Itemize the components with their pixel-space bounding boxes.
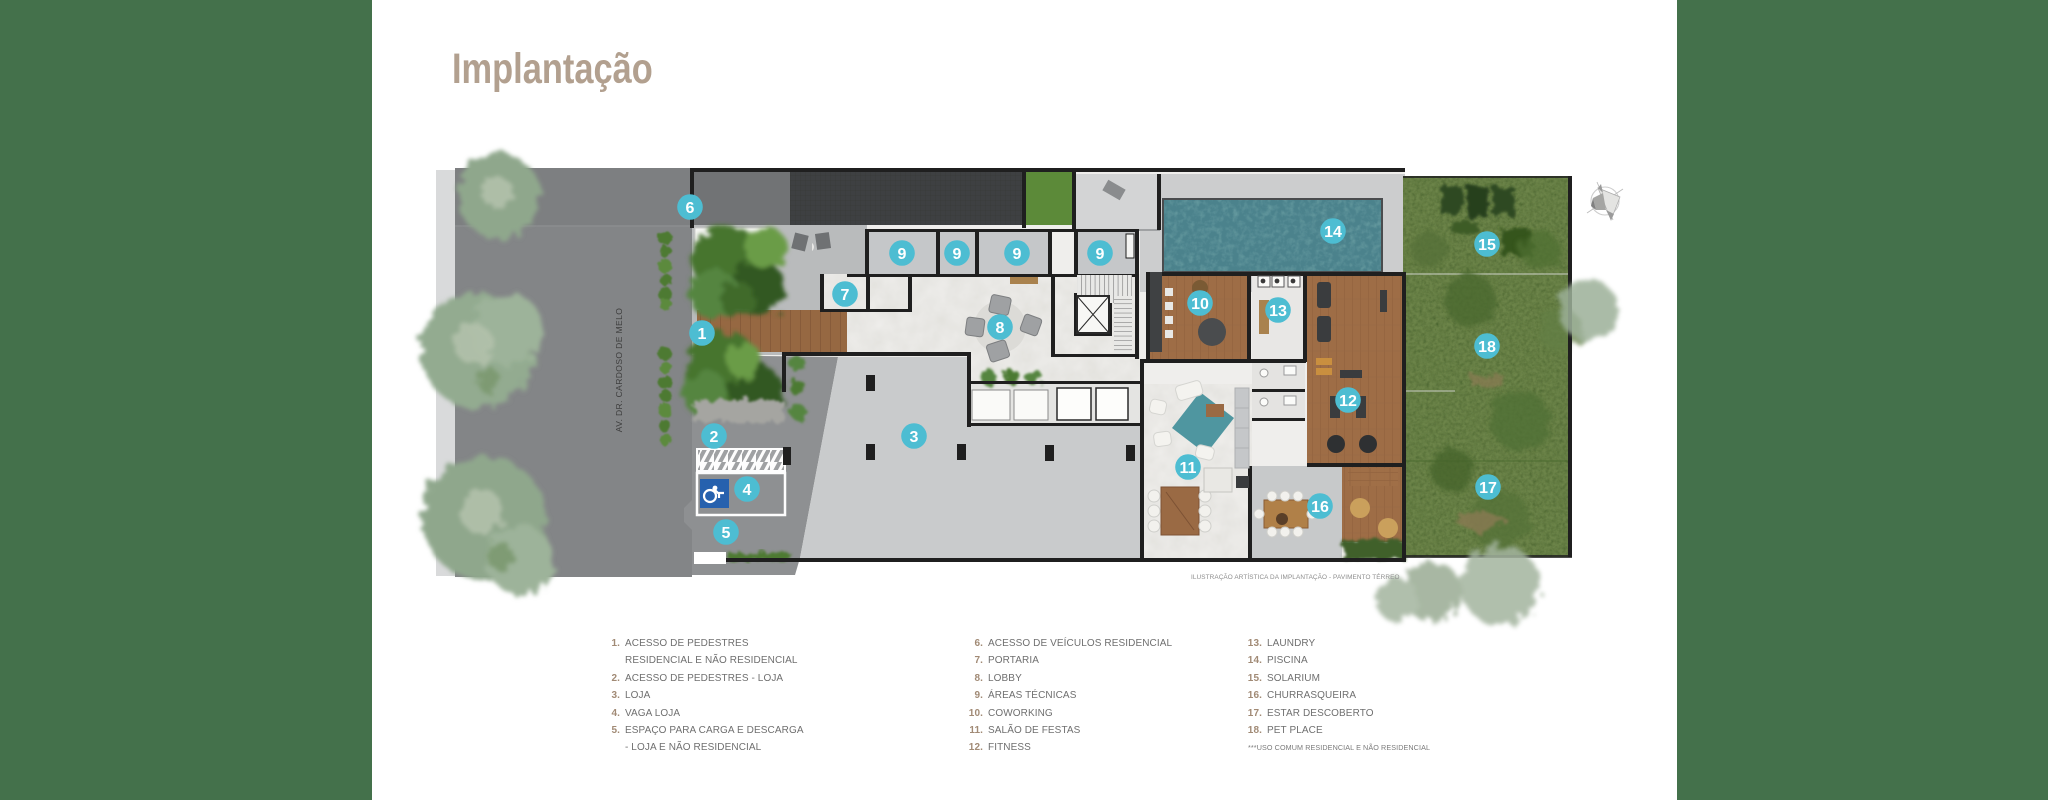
svg-text:3: 3 [910, 429, 919, 446]
svg-text:AV. DR. CARDOSO DE MELO: AV. DR. CARDOSO DE MELO [614, 308, 624, 432]
svg-text:1: 1 [698, 326, 707, 343]
svg-text:11: 11 [1180, 460, 1197, 477]
svg-text:9: 9 [898, 246, 907, 263]
svg-text:7: 7 [841, 287, 850, 304]
svg-text:2: 2 [710, 429, 719, 446]
svg-text:12: 12 [1339, 393, 1357, 410]
svg-text:16: 16 [1311, 499, 1329, 516]
svg-text:17: 17 [1479, 480, 1497, 497]
svg-text:14: 14 [1324, 224, 1342, 241]
svg-text:15: 15 [1478, 237, 1496, 254]
svg-text:13: 13 [1269, 303, 1287, 320]
svg-text:9: 9 [1096, 246, 1105, 263]
svg-text:4: 4 [743, 482, 752, 499]
svg-text:6: 6 [686, 200, 695, 217]
svg-text:9: 9 [1013, 246, 1022, 263]
svg-text:10: 10 [1191, 296, 1209, 313]
svg-text:5: 5 [722, 525, 731, 542]
svg-text:8: 8 [996, 320, 1005, 337]
svg-text:18: 18 [1478, 339, 1496, 356]
svg-text:9: 9 [953, 246, 962, 263]
